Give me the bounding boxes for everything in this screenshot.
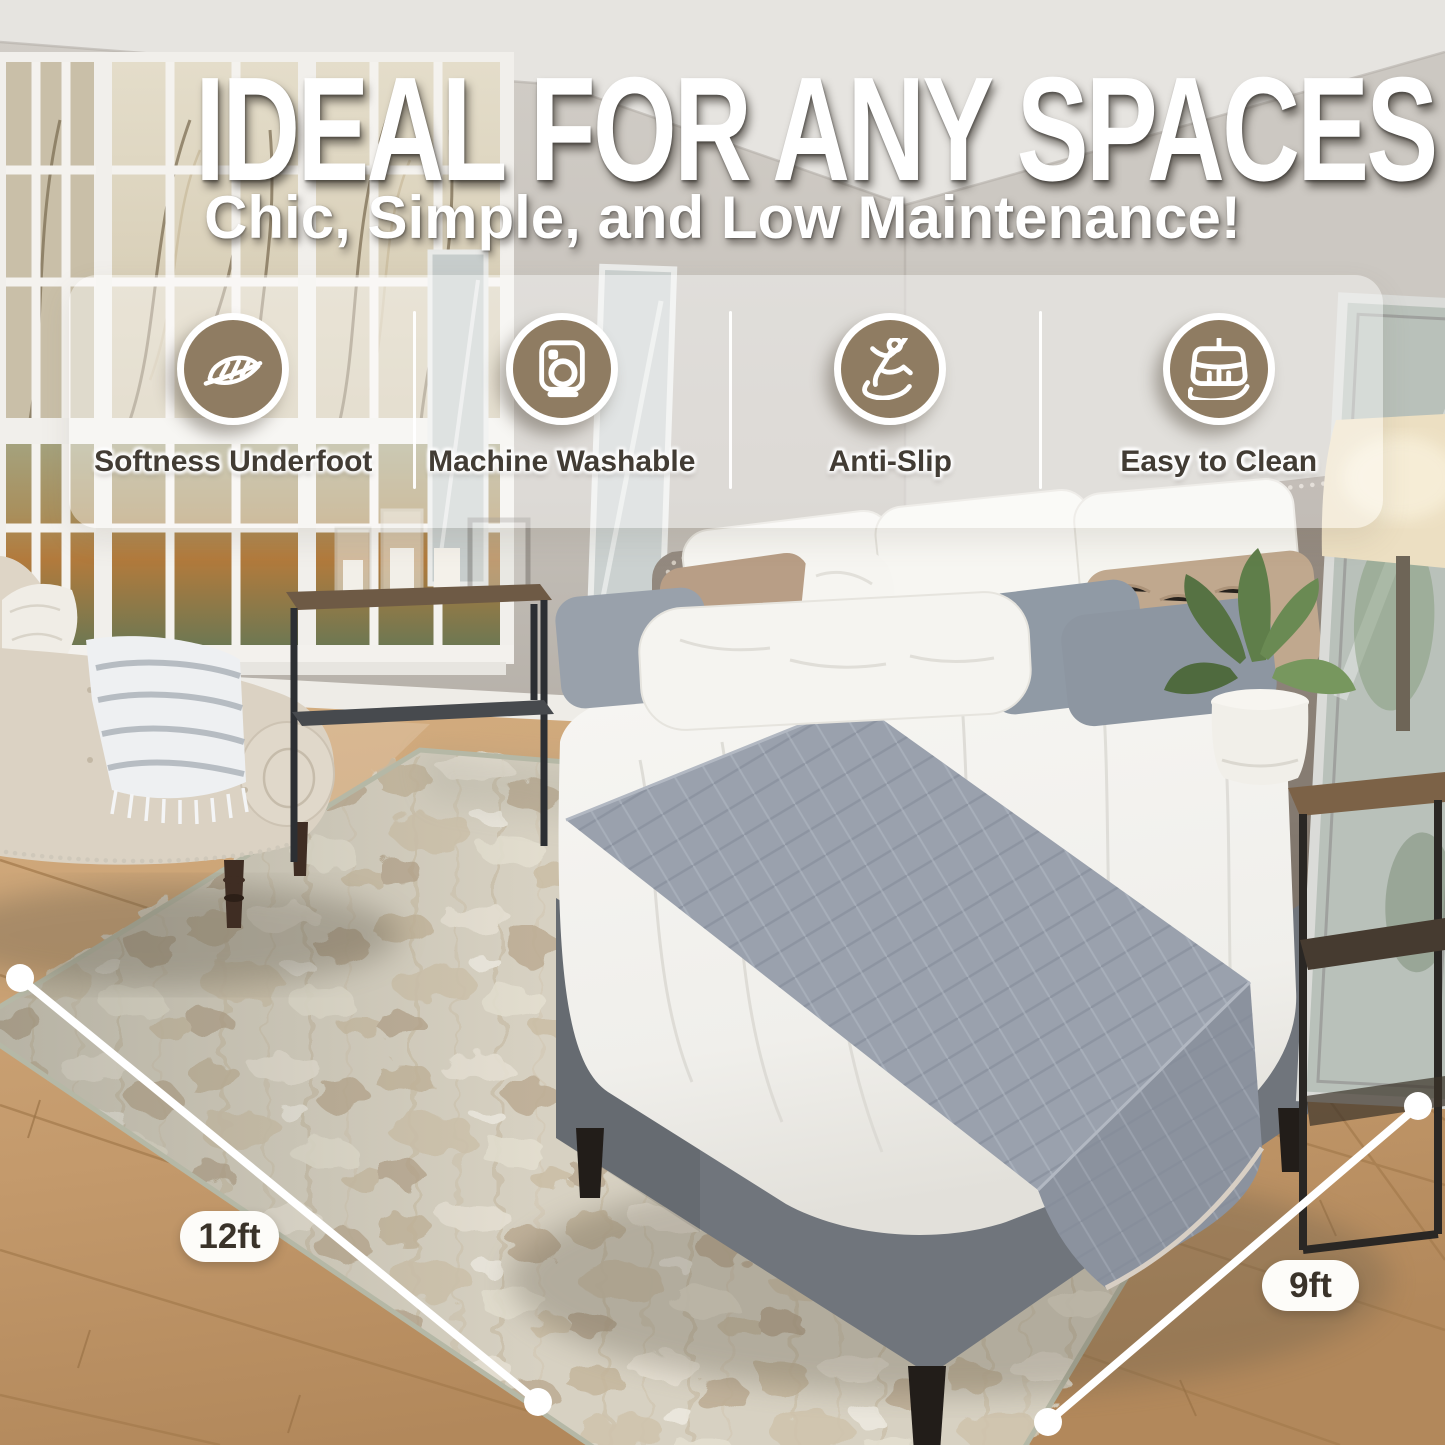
feature-circle — [834, 313, 946, 425]
rug-length-pill: 12ft — [180, 1211, 279, 1262]
washing-machine-icon — [531, 338, 593, 400]
product-marketing-image: IDEAL FOR ANY SPACES Chic, Simple, and L… — [0, 0, 1445, 1445]
rug-width-label: 9ft — [1289, 1266, 1332, 1306]
feature-circle — [177, 313, 289, 425]
page-title: IDEAL FOR ANY SPACES — [195, 56, 1250, 204]
dimension-dot — [6, 964, 34, 992]
feature-label: Anti-Slip — [829, 445, 952, 479]
feature-antislip: Anti-Slip — [726, 275, 1055, 528]
dimension-dot — [1404, 1092, 1432, 1120]
page-subtitle: Chic, Simple, and Low Maintenance! — [0, 186, 1445, 249]
feature-label: Softness Underfoot — [94, 445, 372, 479]
feature-clean: Easy to Clean — [1055, 275, 1384, 528]
rug-length-label: 12ft — [198, 1217, 260, 1257]
feather-icon — [202, 338, 264, 400]
rug-width-pill: 9ft — [1262, 1260, 1359, 1311]
feature-washable: Machine Washable — [398, 275, 727, 528]
cleaning-brush-icon — [1188, 338, 1250, 400]
slipping-person-icon — [859, 338, 921, 400]
picture-frame — [470, 520, 528, 596]
feature-softness: Softness Underfoot — [69, 275, 398, 528]
feature-panel: Softness Underfoot Machine Washable — [69, 275, 1383, 528]
feature-label: Machine Washable — [428, 445, 695, 479]
dimension-dot — [524, 1388, 552, 1416]
feature-circle — [1163, 313, 1275, 425]
feature-circle — [506, 313, 618, 425]
dimension-dot — [1034, 1408, 1062, 1436]
feature-label: Easy to Clean — [1120, 445, 1317, 479]
